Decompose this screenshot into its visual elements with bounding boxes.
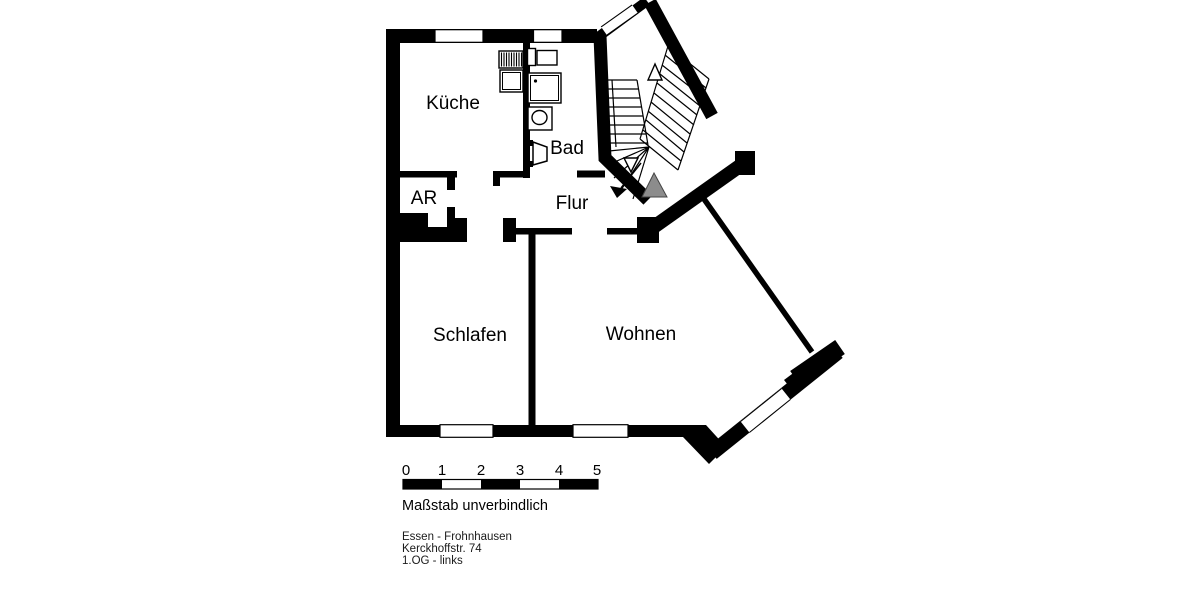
address-street: Kerckhoffstr. 74 [402,543,482,555]
entrance-marker-icon [642,173,667,197]
room-label-schlafen: Schlafen [433,325,507,346]
room-label-bad: Bad [550,138,584,159]
scale-caption: Maßstab unverbindlich [402,498,548,514]
sink-drainer-hatch [502,53,522,67]
room-label-wohnen: Wohnen [606,324,676,345]
shower-drain [534,79,537,82]
wall-kueche-south-2 [493,171,528,178]
wall-bad-south [577,171,605,178]
floor-plan-svg: Küche Bad AR Flur Schlafen Wohnen 0 1 2 … [0,0,1200,600]
wall-bottom [386,425,703,437]
scale-bar: 0 1 2 3 4 5 Maßstab unverbindlich [402,462,601,514]
window-schlafen [440,425,493,438]
shower-icon [528,73,561,103]
bathroom-door-icon [529,140,547,167]
stair-right-flight [640,46,709,170]
wall-schlafen-wohnen [529,234,536,425]
door-leaf [533,142,547,165]
window-kueche [435,30,483,43]
wall-flur-south-1 [516,228,572,235]
scale-tick-1: 1 [438,462,446,479]
wall-wohnen-right [704,199,812,352]
scale-tick-2: 2 [477,462,485,479]
toilet-bowl [532,111,547,125]
wall-ar-south-step [400,213,428,222]
kitchen-fixtures [499,51,523,92]
scale-tick-3: 3 [516,462,524,479]
window-wohnen [573,425,628,438]
wall-entrance-end [735,151,755,175]
scale-tick-0: 0 [402,462,410,479]
washbasin-bowl [537,51,557,66]
address-block: Essen - Frohnhausen Kerckhoffstr. 74 1.O… [402,531,512,567]
wall-flur-south-2 [607,228,645,235]
window-bad [534,30,563,43]
address-city: Essen - Frohnhausen [402,531,512,543]
doorpost-kueche [493,177,500,186]
doorpost-schlafen [503,218,516,242]
window-stairwell-gap [604,9,635,31]
wall-kueche-south-1 [398,171,457,178]
scale-seg-2-3 [481,480,520,490]
scale-tick-5: 5 [593,462,601,479]
stove-icon [500,70,523,92]
room-label-flur: Flur [556,193,589,214]
address-floor: 1.OG - links [402,555,463,567]
stair-guide-arrowhead [610,186,627,198]
washbasin-icon [528,49,536,66]
wall-ar-south-notch [428,218,447,227]
wall-ar-right-top [447,177,455,190]
room-label-kueche: Küche [426,93,480,114]
scale-seg-4-5 [559,480,598,490]
scale-seg-0-1 [403,480,442,490]
scale-tick-4: 4 [555,462,563,479]
window-bay-gap [745,394,786,427]
room-label-ar: AR [411,188,437,209]
floor-plan-page: Küche Bad AR Flur Schlafen Wohnen 0 1 2 … [0,0,1200,600]
wall-top [386,29,597,43]
